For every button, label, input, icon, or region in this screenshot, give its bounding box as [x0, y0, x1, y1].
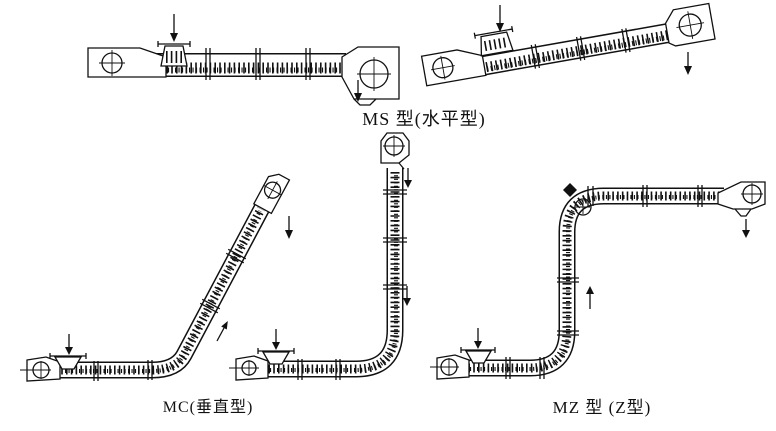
tail-section	[20, 357, 60, 381]
tail-section	[430, 355, 469, 379]
tail-section	[422, 46, 486, 86]
feed-arrow-icon	[272, 329, 280, 350]
discharge-arrow-icon	[285, 216, 293, 239]
discharge-arrow-icon	[404, 168, 412, 188]
head-section	[663, 4, 715, 47]
head-section	[342, 47, 399, 105]
conveyor-diagrams	[0, 0, 776, 431]
head-section	[718, 182, 765, 216]
discharge-arrow-icon	[684, 52, 692, 75]
figure-mz-z	[430, 182, 765, 379]
feed-arrow-icon	[496, 5, 504, 32]
figure-ms-inclined	[419, 0, 715, 90]
tail-section	[88, 48, 166, 77]
figure-mc-inclined	[20, 170, 293, 381]
caption-ms: MS 型(水平型)	[362, 105, 486, 131]
feed-arrow-icon	[474, 328, 482, 349]
caption-mc: MC(垂直型)	[163, 393, 254, 417]
discharge-arrow-icon	[742, 219, 750, 238]
flow-arrow-icon	[586, 286, 594, 309]
feed-arrow-icon	[170, 14, 178, 42]
figure-mc-vertical	[229, 133, 412, 380]
corner-marker	[563, 183, 577, 197]
tail-section	[229, 356, 268, 380]
figure-ms-horizontal	[88, 14, 399, 105]
feed-arrow-icon	[65, 334, 73, 355]
figure-canvas: MS 型(水平型) MC(垂直型) MZ 型 (Z型)	[0, 0, 776, 431]
head-section	[381, 133, 409, 169]
flow-arrow-icon	[217, 321, 228, 341]
caption-mz: MZ 型 (Z型)	[553, 393, 652, 418]
head-section	[254, 170, 290, 213]
